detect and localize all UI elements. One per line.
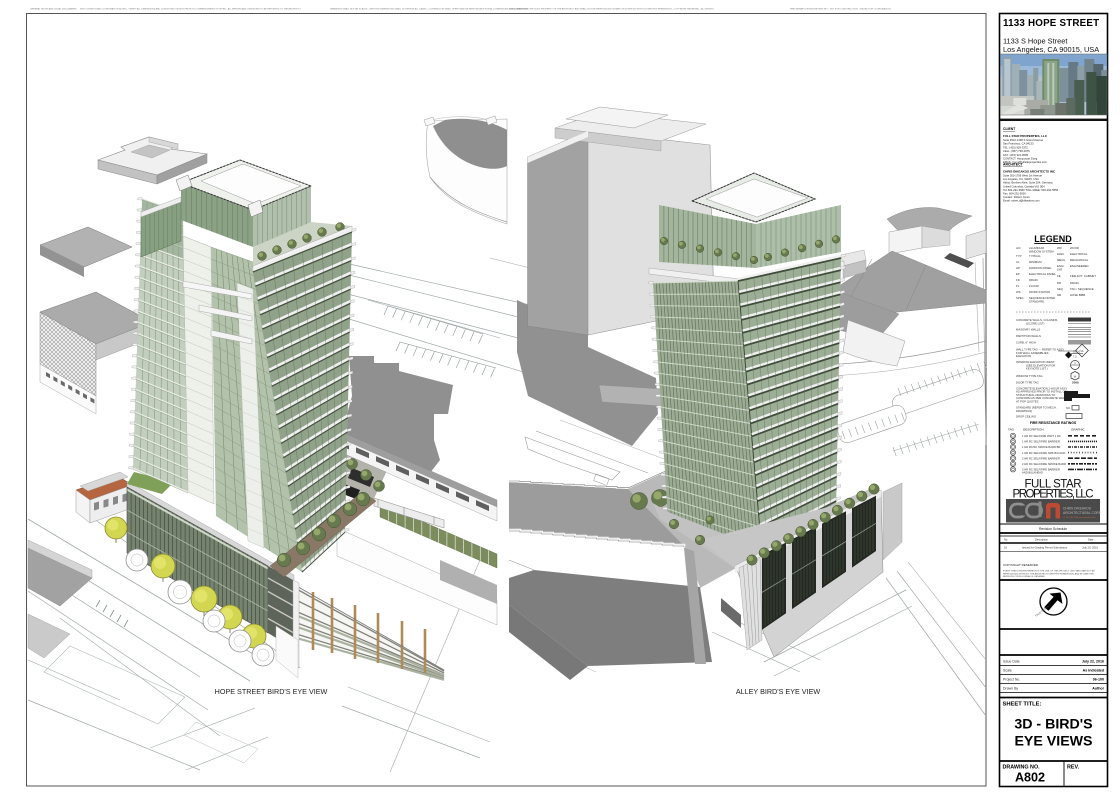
svg-text:Issue Date: Issue Date — [1003, 660, 1020, 664]
svg-text:101'-0": 101'-0" — [1073, 350, 1081, 354]
svg-text:NO.: NO. — [1066, 406, 1071, 410]
svg-text:AND BULKHEAD: AND BULKHEAD — [1022, 471, 1043, 475]
svg-text:1 HR RC SELF/FRE PART 1 DA: 1 HR RC SELF/FRE PART 1 DA — [1022, 434, 1061, 438]
svg-text:Email: robert.d@dikeakos.com: Email: robert.d@dikeakos.com — [1003, 199, 1040, 203]
svg-text:MASONRY WALLS: MASONRY WALLS — [1016, 328, 1040, 332]
svg-text:HOSE BIBB: HOSE BIBB — [1070, 293, 1085, 297]
svg-text:1 HR RC SELF/FIRE SMK BULKHD: 1 HR RC SELF/FIRE SMK BULKHD — [1022, 451, 1065, 455]
svg-text:AL: AL — [1016, 260, 1020, 264]
svg-text:Abbot: Berliner Allee, Suite 2: Abbot: Berliner Allee, Suite 204, German… — [1003, 181, 1053, 185]
svg-text:Contact: Robert Jones: Contact: Robert Jones — [1003, 195, 1030, 199]
svg-text:GRAPHIC: GRAPHIC — [1071, 428, 1086, 432]
svg-text:Drawn By: Drawn By — [1003, 687, 1018, 691]
svg-text:Los Angeles, CA, 90015, USA: Los Angeles, CA, 90015, USA — [1003, 177, 1039, 181]
svg-text:SEQ: SEQ — [1057, 287, 1064, 291]
svg-text:MECHANICAL: MECHANICAL — [1070, 258, 1089, 262]
svg-text:06-100: 06-100 — [1093, 678, 1104, 682]
svg-text:TEL: (415) 929-3372: TEL: (415) 929-3372 — [1003, 145, 1028, 149]
svg-text:ELECTRICAL: ELECTRICAL — [1070, 252, 1088, 256]
svg-text:DRAWINGS]: DRAWINGS] — [1016, 409, 1032, 413]
svg-text:Suite 300-1706 West 1st Avenue: Suite 300-1706 West 1st Avenue — [1003, 174, 1043, 178]
svg-text:10: 10 — [1004, 546, 1007, 550]
svg-text:SHEET TITLE:: SHEET TITLE: — [1003, 702, 1042, 708]
svg-text:FIRE EXT. CABINET: FIRE EXT. CABINET — [1070, 274, 1096, 278]
svg-text:GENERAL NOTES AND LEGAL DISCLA: GENERAL NOTES AND LEGAL DISCLAIMERS — [30, 8, 77, 11]
svg-text:REPRODUCTION LICENSE IS OBTAIN: REPRODUCTION LICENSE IS OBTAINED — [1003, 575, 1045, 578]
svg-text:WOOD: WOOD — [1070, 246, 1079, 250]
svg-text:Issued for Grading Permit Subm: Issued for Grading Permit Submission — [1022, 546, 1068, 550]
svg-text:DOOR TYPE TAG: DOOR TYPE TAG — [1016, 381, 1039, 385]
svg-text:SPEC: SPEC — [1016, 296, 1024, 300]
svg-text:2 HR RC SELF/FIRE BARRIER: 2 HR RC SELF/FIRE BARRIER — [1022, 456, 1060, 460]
svg-text:CELL: (957) 738-2975: CELL: (957) 738-2975 — [1003, 149, 1030, 153]
svg-text:2 HR RC SELF/FIRE SMOKE BARR: 2 HR RC SELF/FIRE SMOKE BARR — [1022, 462, 1066, 466]
svg-text:THIS DRAWING IS THE SOLE PROPE: THIS DRAWING IS THE SOLE PROPERTY OF THE… — [510, 8, 714, 11]
svg-text:As indicated: As indicated — [1083, 669, 1104, 673]
svg-text:DRAWINGS SHALL NOT BE SCALED -: DRAWINGS SHALL NOT BE SCALED - WRITTEN D… — [330, 8, 528, 11]
svg-text:ELEVATION: ELEVATION — [1016, 354, 1031, 358]
svg-text:1 HR RC SELF/FIRE BARRIER: 1 HR RC SELF/FIRE BARRIER — [1022, 440, 1060, 444]
svg-text:Scale: Scale — [1003, 669, 1012, 673]
svg-text:WINDOW SYSTEM: WINDOW SYSTEM — [1029, 250, 1054, 254]
svg-text:A802: A802 — [1015, 771, 1045, 785]
svg-text:ELECTRICAL PANEL: ELECTRICAL PANEL — [1029, 272, 1056, 276]
svg-text:No.: No. — [1004, 538, 1008, 542]
svg-text:WORK STATION: WORK STATION — [1029, 290, 1050, 294]
svg-text:STANDARD: STANDARD — [1029, 300, 1044, 304]
svg-text:ARCHITECT: ARCHITECT — [1003, 163, 1024, 167]
svg-text:FL: FL — [1016, 284, 1020, 288]
svg-text:PARTITION WALLS: PARTITION WALLS — [1016, 334, 1041, 338]
svg-text:REPRODUCED WITHOUT THE ARCHIT: REPRODUCED WITHOUT THE ARCHITECTS WRITTE… — [1003, 572, 1094, 575]
svg-text:DR: DR — [1057, 281, 1061, 285]
svg-text:CHRIS DIKEAKOS ARCHITECTS INC: CHRIS DIKEAKOS ARCHITECTS INC — [1003, 170, 1056, 174]
svg-text:WS: WS — [1016, 290, 1021, 294]
svg-text:TAG / SEQUENCE: TAG / SEQUENCE — [1070, 287, 1094, 291]
svg-text:San Francisco, CA 94133: San Francisco, CA 94133 — [1003, 142, 1034, 146]
svg-text:Revision Schedule: Revision Schedule — [1039, 527, 1067, 531]
svg-text:2068: 2068 — [1072, 381, 1079, 385]
svg-text:July 20, 2016: July 20, 2016 — [1082, 546, 1098, 550]
svg-text:DESCRIPTION: DESCRIPTION — [1023, 428, 1044, 432]
svg-text:FULL STAR PROPERTIES, LLC: FULL STAR PROPERTIES, LLC — [1003, 134, 1048, 138]
svg-text:CURB, 6" HIGH: CURB, 6" HIGH — [1016, 341, 1036, 345]
svg-text:EVERY THING SHOWN HEREON IS TH: EVERY THING SHOWN HEREON IS THE USE OF T… — [1003, 570, 1095, 573]
svg-text:T.O.: T.O. — [1073, 356, 1078, 359]
svg-text:1 HR RC/SC SMOKE BARR BR: 1 HR RC/SC SMOKE BARR BR — [1022, 445, 1060, 449]
svg-text:+1 604 683 3983 www.dikeakos: +1 604 683 3983 www.dikeakos.com — [1063, 517, 1096, 519]
svg-text:HP: HP — [1016, 266, 1020, 270]
svg-text:A/C: A/C — [1016, 246, 1021, 250]
svg-text:GB: GB — [1057, 293, 1061, 297]
svg-text:EYE VIEWS: EYE VIEWS — [1014, 734, 1092, 750]
svg-text:ARCHITECTURAL CORP: ARCHITECTURAL CORP — [1063, 511, 1102, 515]
svg-text:HOPE STREET BIRD'S EYE VIEW: HOPE STREET BIRD'S EYE VIEW — [215, 687, 328, 696]
svg-text:WINDOW TYPE TAG: WINDOW TYPE TAG — [1016, 374, 1043, 378]
svg-text:United Columbia, Canada V6J 0E: United Columbia, Canada V6J 0E4 — [1003, 184, 1045, 188]
svg-text:KEYNOTE LIST ): KEYNOTE LIST ) — [1026, 367, 1048, 371]
svg-text:AT POP QUOTES: AT POP QUOTES — [1016, 399, 1039, 403]
svg-text:FE: FE — [1057, 274, 1061, 278]
svg-text:(SCORE LIST): (SCORE LIST) — [1026, 321, 1045, 325]
svg-text:Project No.: Project No. — [1003, 678, 1020, 682]
svg-text:1133 HOPE STREET: 1133 HOPE STREET — [1003, 18, 1099, 29]
svg-text:TYP: TYP — [1016, 254, 1022, 258]
svg-text:LEGEND: LEGEND — [1034, 234, 1072, 244]
svg-text:Fax: 604-291-3600: Fax: 604-291-3600 — [1003, 192, 1026, 196]
svg-text:MINIMUM: MINIMUM — [1029, 260, 1042, 264]
svg-text:HORIZON PANEL: HORIZON PANEL — [1029, 266, 1052, 270]
svg-text:LVR: LVR — [1057, 268, 1062, 272]
svg-text:Los Angeles, CA 90015, USA: Los Angeles, CA 90015, USA — [1003, 45, 1099, 54]
svg-text:CLIENT: CLIENT — [1003, 127, 1016, 131]
svg-text:Tel: 604-291-3660 TOLL FREE:: Tel: 604-291-3660 TOLL FREE: 604-291-555… — [1003, 188, 1059, 192]
svg-text:ENGINEERED: ENGINEERED — [1070, 264, 1089, 268]
svg-text:CONTACT: Hong-yuan Dong: CONTACT: Hong-yuan Dong — [1003, 157, 1038, 161]
svg-text:Description: Description — [1035, 538, 1049, 542]
svg-text:FLOOR: FLOOR — [1029, 284, 1039, 288]
svg-text:FAX: (415) 921-0595: FAX: (415) 921-0595 — [1003, 153, 1028, 157]
svg-text:WD: WD — [1057, 246, 1062, 250]
svg-text:July 22, 2016: July 22, 2016 — [1082, 660, 1104, 664]
svg-text:FD: FD — [1016, 278, 1020, 282]
svg-text:PRELIMINARY DESIGN REVIEW SET: PRELIMINARY DESIGN REVIEW SET - NOT FOR … — [790, 8, 891, 11]
svg-text:ALLEY BIRD'S EYE VIEW: ALLEY BIRD'S EYE VIEW — [736, 687, 821, 696]
svg-text:TAG: TAG — [1008, 428, 1015, 432]
svg-text:EP: EP — [1016, 272, 1020, 276]
svg-text:PROPERTIES, LLC: PROPERTIES, LLC — [1013, 489, 1094, 501]
svg-text:FIRE RESISTANCE RATINGS: FIRE RESISTANCE RATINGS — [1030, 421, 1077, 425]
svg-text:DRAIN: DRAIN — [1070, 281, 1079, 285]
svg-text:Author: Author — [1092, 687, 1104, 691]
svg-text:TYPICAL: TYPICAL — [1029, 254, 1041, 258]
svg-text:DRAIN: DRAIN — [1029, 278, 1038, 282]
svg-text:REV.: REV. — [1067, 765, 1080, 771]
svg-text:Date: Date — [1088, 538, 1094, 542]
svg-text:ELEC: ELEC — [1057, 252, 1064, 256]
svg-text:3D - BIRD'S: 3D - BIRD'S — [1014, 717, 1092, 733]
svg-text:SITE CONTEXT AND COORDINATION: SITE CONTEXT AND COORDINATION NOTES - VE… — [80, 8, 302, 11]
svg-text:Suite #310-1438 S Grand Avenue: Suite #310-1438 S Grand Avenue — [1003, 138, 1044, 142]
svg-text:DROP CEILING: DROP CEILING — [1016, 415, 1036, 419]
svg-text:MECH: MECH — [1057, 258, 1065, 262]
svg-text:COPYRIGHT RESERVED: COPYRIGHT RESERVED — [1003, 563, 1039, 567]
